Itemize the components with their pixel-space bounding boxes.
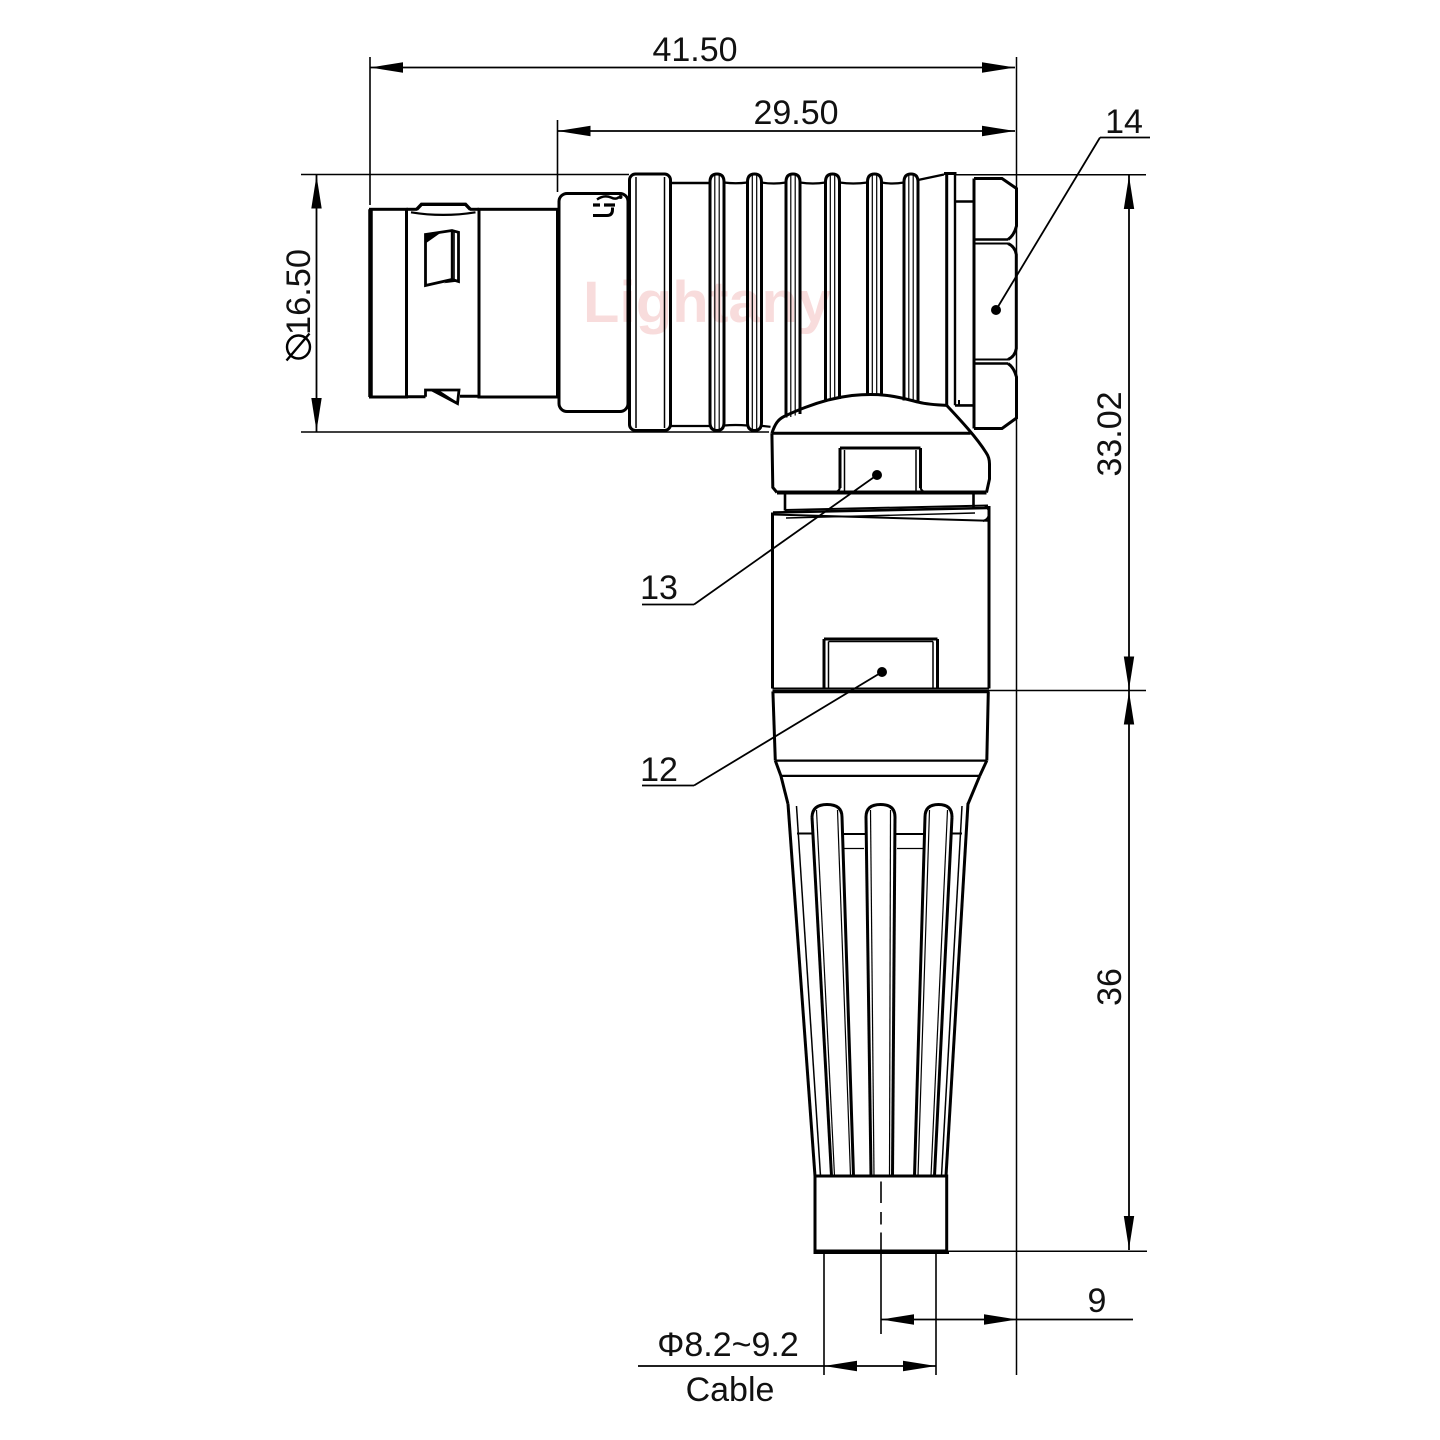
svg-text:14: 14 xyxy=(1105,103,1143,141)
svg-text:41.50: 41.50 xyxy=(652,31,737,69)
svg-text:29.50: 29.50 xyxy=(753,94,838,132)
svg-text:Φ8.2~9.2: Φ8.2~9.2 xyxy=(657,1326,799,1364)
svg-text:Lightany: Lightany xyxy=(583,270,831,335)
svg-text:9: 9 xyxy=(1088,1282,1107,1320)
svg-text:Cable: Cable xyxy=(686,1371,775,1409)
svg-text:36: 36 xyxy=(1091,968,1129,1006)
svg-text:16.50: 16.50 xyxy=(280,249,318,335)
svg-text:33.02: 33.02 xyxy=(1091,391,1129,476)
svg-text:12: 12 xyxy=(640,751,678,789)
svg-text:13: 13 xyxy=(640,569,678,607)
